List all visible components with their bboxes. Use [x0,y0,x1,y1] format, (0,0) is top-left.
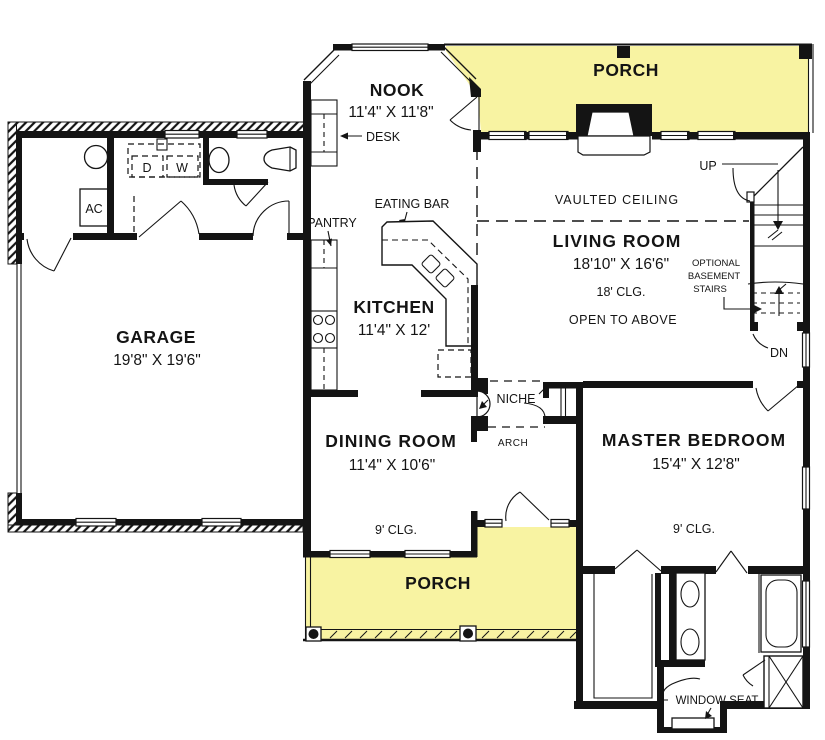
svg-text:18'10" X 16'6": 18'10" X 16'6" [573,256,669,273]
svg-text:D: D [142,161,151,175]
svg-text:OPEN TO ABOVE: OPEN TO ABOVE [569,313,677,327]
svg-text:11'4" X 11'8": 11'4" X 11'8" [348,104,433,121]
svg-text:MASTER BEDROOM: MASTER BEDROOM [602,430,786,450]
svg-text:DN: DN [770,346,788,360]
svg-text:BASEMENT: BASEMENT [688,271,740,282]
svg-text:11'4" X 10'6": 11'4" X 10'6" [349,457,435,474]
svg-text:UP: UP [699,159,716,173]
svg-text:W: W [176,161,188,175]
svg-text:KITCHEN: KITCHEN [353,297,434,317]
svg-text:15'4" X 12'8": 15'4" X 12'8" [652,456,740,473]
svg-text:EATING BAR: EATING BAR [375,197,450,211]
svg-text:VAULTED CEILING: VAULTED CEILING [555,193,679,207]
svg-text:NOOK: NOOK [370,80,425,100]
svg-text:OPTIONAL: OPTIONAL [692,258,740,269]
svg-text:PORCH: PORCH [405,573,471,593]
svg-text:WINDOW SEAT: WINDOW SEAT [676,695,759,707]
svg-text:ARCH: ARCH [498,438,528,449]
svg-text:11'4" X 12': 11'4" X 12' [358,322,430,339]
svg-text:GARAGE: GARAGE [116,327,196,347]
svg-text:18' CLG.: 18' CLG. [597,285,646,299]
svg-text:DINING ROOM: DINING ROOM [325,431,457,451]
svg-text:STAIRS: STAIRS [693,284,727,295]
svg-text:PANTRY: PANTRY [307,216,357,230]
svg-text:AC: AC [85,202,102,216]
svg-text:9' CLG.: 9' CLG. [673,522,715,536]
svg-text:DESK: DESK [366,130,401,144]
svg-text:9' CLG.: 9' CLG. [375,523,417,537]
svg-text:19'8" X 19'6": 19'8" X 19'6" [113,352,201,369]
svg-text:PORCH: PORCH [593,60,659,80]
svg-text:LIVING ROOM: LIVING ROOM [553,231,682,251]
